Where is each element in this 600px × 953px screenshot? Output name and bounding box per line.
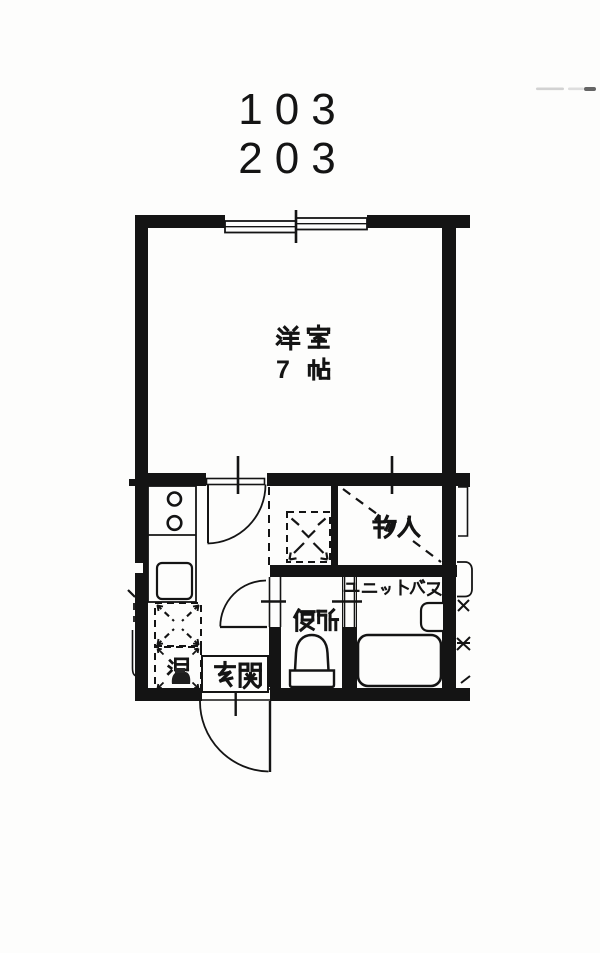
svg-text:203: 203 xyxy=(238,134,347,183)
svg-text:7: 7 xyxy=(276,356,290,384)
svg-text:103: 103 xyxy=(238,85,347,134)
